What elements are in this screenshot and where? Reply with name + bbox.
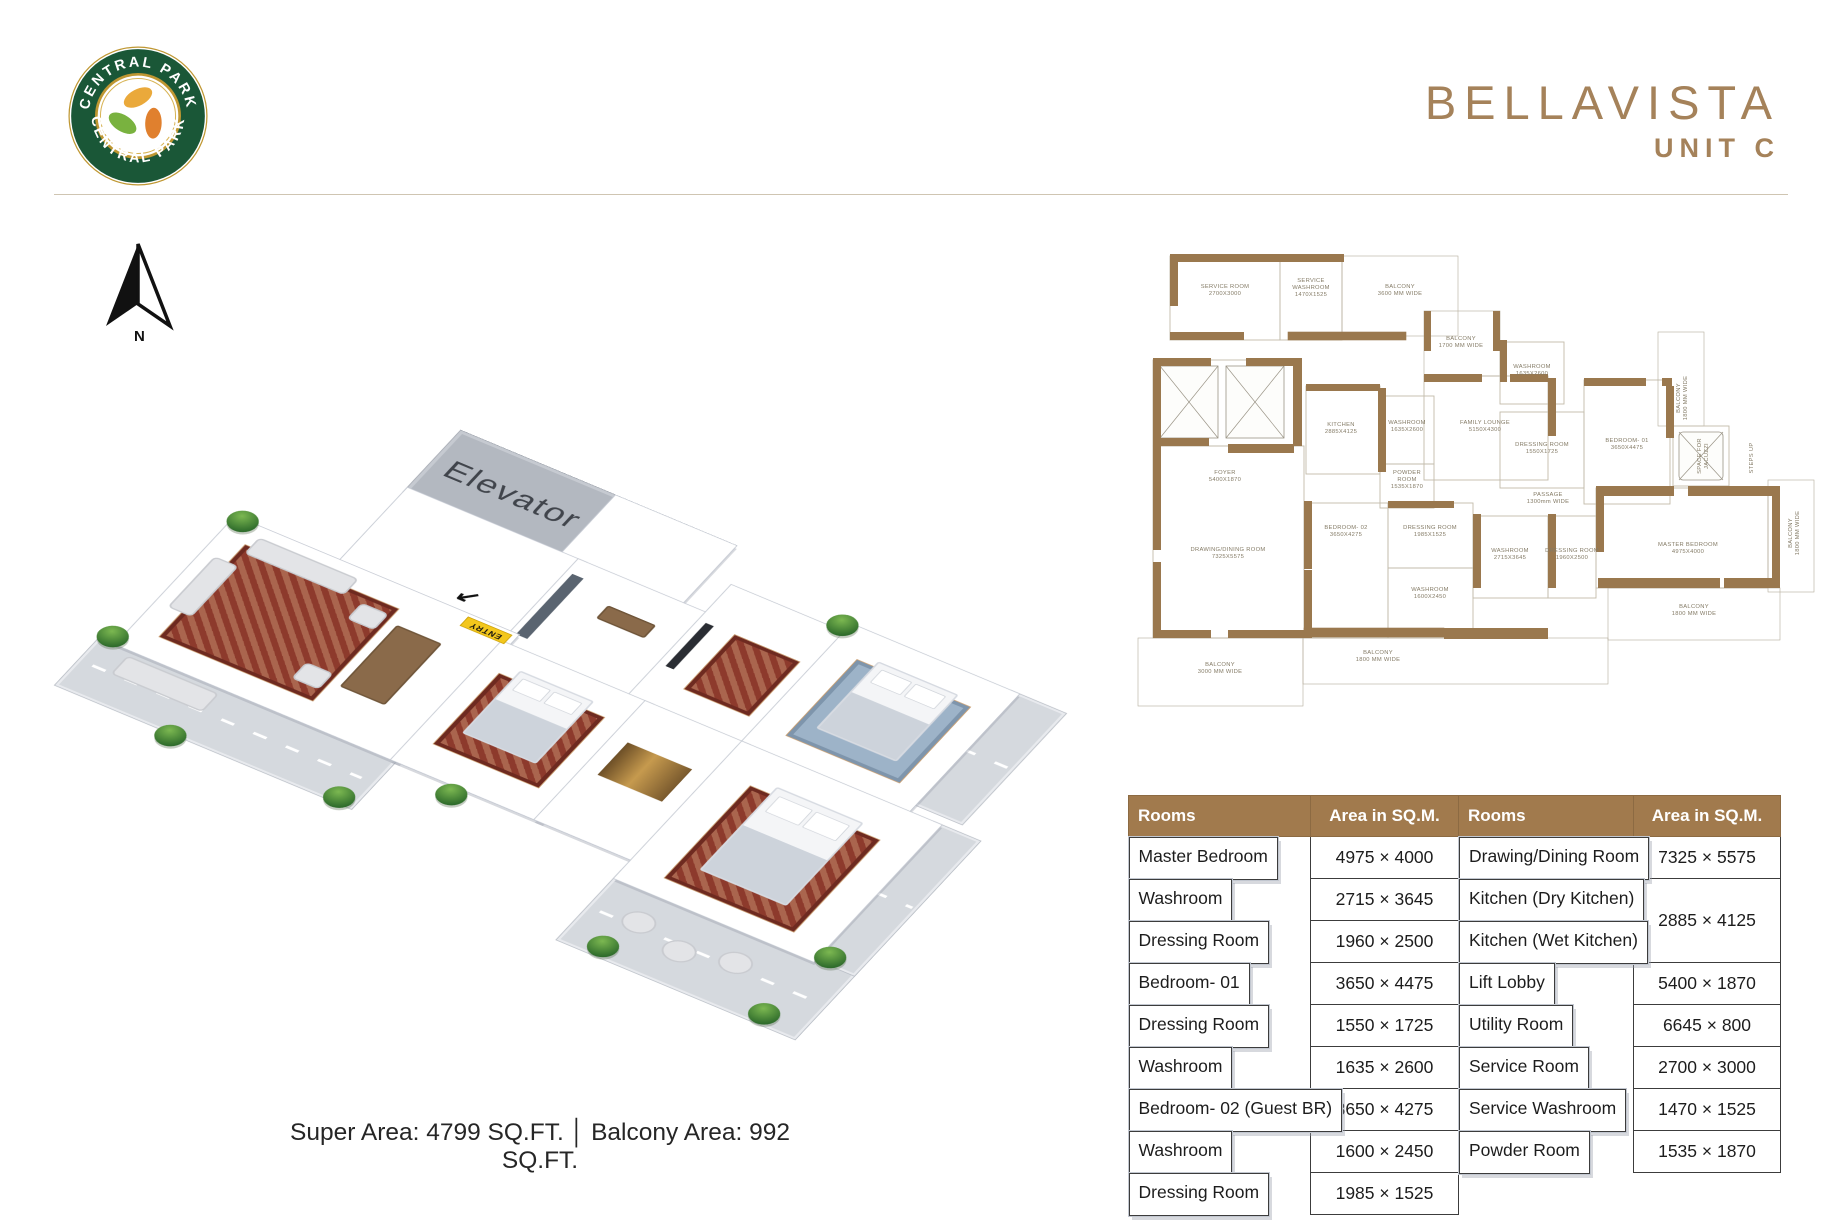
plan2d-room-label: BALCONY3600 MM WIDE [1378, 284, 1423, 297]
table-header-row: Rooms Area in SQ.M. Rooms Area in SQ.M. [1129, 796, 1781, 837]
plan2d-room-label: SERVICE ROOM2700X3000 [1201, 284, 1250, 297]
room-cell: Dressing Room [1129, 1005, 1270, 1048]
wardrobe-unit [598, 742, 693, 801]
area-cell: 2885 × 4125 [1634, 879, 1781, 963]
area-cell: 5400 × 1870 [1634, 963, 1781, 1005]
area-cell: 1960 × 2500 [1311, 921, 1459, 963]
area-cell: 1600 × 2450 [1311, 1131, 1459, 1173]
plan2d-room-label: BEDROOM- 023650X4275 [1324, 525, 1367, 538]
table-row: Bedroom- 013650 × 4475Lift Lobby5400 × 1… [1129, 963, 1781, 1005]
iso-plan-surface: Elevator [28, 380, 1105, 1034]
header-rooms-right: Rooms [1459, 796, 1634, 837]
plan2d-room-label: DRAWING/DINING ROOM7325X5575 [1190, 547, 1265, 560]
room-cell: Bedroom- 01 [1129, 963, 1250, 1006]
plan2d-room-label: POWDERROOM1535X1870 [1391, 470, 1423, 490]
room-cell: Lift Lobby [1459, 963, 1555, 1006]
area-cell: 6645 × 800 [1634, 1005, 1781, 1047]
area-cell: 7325 × 5575 [1634, 837, 1781, 879]
plan2d-room-label: BALCONY1800 MM WIDE [1676, 376, 1689, 421]
plan2d-room-label: SPACE FORJACUZZI [1697, 438, 1710, 474]
header-divider [54, 194, 1788, 195]
plan2d-room-label: WASHROOM1600X2450 [1411, 587, 1449, 600]
kitchen-island [596, 605, 656, 638]
room-cell: Dressing Room [1129, 1173, 1270, 1216]
plan2d-room-label: FAMILY LOUNGE5150X4300 [1460, 420, 1510, 433]
plan2d-room-label: KITCHEN2885X4125 [1325, 422, 1357, 435]
super-area-text: Super Area: 4799 SQ.FT. [290, 1119, 564, 1146]
room-cell: Service Washroom [1459, 1089, 1626, 1132]
plan2d-room-label: PASSAGE1300mm WIDE [1527, 492, 1570, 505]
plan2d-room-label: BALCONY1800 MM WIDE [1788, 511, 1801, 556]
table-row: Washroom2715 × 3645Kitchen (Dry Kitchen)… [1129, 879, 1781, 921]
room-cell: Bedroom- 02 (Guest BR) [1129, 1089, 1343, 1132]
room-cell: Utility Room [1459, 1005, 1573, 1048]
floorplan-2d: SERVICE ROOM2700X3000SERVICEWASHROOM1470… [1128, 248, 1818, 738]
plan2d-room-label: DRESSING ROOM1985X1525 [1403, 525, 1457, 538]
area-cell: 1635 × 2600 [1311, 1047, 1459, 1089]
room-cell: Service Room [1459, 1047, 1589, 1090]
plan2d-room-label: DRESSING ROOM1550X1725 [1515, 442, 1569, 455]
plan2d-room-label: WASHROOM2715X3645 [1491, 548, 1529, 561]
room-area-table: Rooms Area in SQ.M. Rooms Area in SQ.M. … [1128, 795, 1781, 1215]
plan2d-room-label: BALCONY1700 MM WIDE [1439, 336, 1484, 349]
page-title: BELLAVISTA [1425, 78, 1780, 127]
area-cell: 1985 × 1525 [1311, 1173, 1459, 1215]
table-row: Dressing Room1550 × 1725Utility Room6645… [1129, 1005, 1781, 1047]
area-cell: 2715 × 3645 [1311, 879, 1459, 921]
table-row: Washroom1600 × 2450Powder Room1535 × 187… [1129, 1131, 1781, 1173]
area-cell: 2700 × 3000 [1634, 1047, 1781, 1089]
area-cell: 1535 × 1870 [1634, 1131, 1781, 1173]
iso-floorplan-3d: Elevator [20, 340, 1110, 1110]
table-row: Bedroom- 02 (Guest BR)3650 × 4275Service… [1129, 1089, 1781, 1131]
room-cell: Washroom [1129, 1047, 1233, 1090]
header-rooms-left: Rooms [1129, 796, 1311, 837]
table-row: Master Bedroom4975 × 4000Drawing/Dining … [1129, 837, 1781, 879]
plan2d-room-label: BEDROOM- 013650X4475 [1605, 438, 1648, 451]
plan2d-room-label: MASTER BEDROOM4975X4000 [1658, 542, 1718, 555]
room-cell: Kitchen (Wet Kitchen) [1459, 921, 1648, 964]
plan2d-room-label: BALCONY1800 MM WIDE [1672, 604, 1717, 617]
plan2d-room-label: BALCONY3000 MM WIDE [1198, 662, 1243, 675]
central-park-logo: CENTRAL PARK CENTRAL PARK [66, 44, 210, 188]
header-area-left: Area in SQ.M. [1311, 796, 1459, 837]
area-cell: 1470 × 1525 [1634, 1089, 1781, 1131]
plan2d-room-label: WASHROOM1635X2600 [1513, 364, 1551, 377]
page-subtitle: UNIT C [1425, 133, 1780, 164]
plan2d-room-label: WASHROOM1635X2600 [1388, 420, 1426, 433]
plan2d-room-label: SERVICEWASHROOM1470X1525 [1292, 278, 1330, 298]
area-separator: │ [564, 1119, 591, 1146]
room-cell: Washroom [1129, 1131, 1233, 1174]
empty-cell [1459, 1173, 1781, 1215]
table-row: Dressing Room1985 × 1525 [1129, 1173, 1781, 1215]
area-cell: 1550 × 1725 [1311, 1005, 1459, 1047]
brochure-page: CENTRAL PARK CENTRAL PARK BELLAVISTA UNI… [0, 0, 1832, 1221]
area-summary: Super Area: 4799 SQ.FT.│Balcony Area: 99… [250, 1119, 830, 1175]
area-cell: 4975 × 4000 [1311, 837, 1459, 879]
room-cell: Drawing/Dining Room [1459, 837, 1649, 880]
plan2d-room-label: STEPS UP [1749, 442, 1755, 473]
title-block: BELLAVISTA UNIT C [1425, 78, 1780, 164]
room-cell: Dressing Room [1129, 921, 1270, 964]
room-cell: Master Bedroom [1129, 837, 1278, 880]
header-area-right: Area in SQ.M. [1634, 796, 1781, 837]
north-compass-icon: N [92, 240, 184, 344]
plan2d-room-label: BALCONY1800 MM WIDE [1356, 650, 1401, 663]
room-cell: Powder Room [1459, 1131, 1590, 1174]
plan2d-room-label: FOYER5400X1870 [1209, 470, 1241, 483]
table-row: Washroom1635 × 2600Service Room2700 × 30… [1129, 1047, 1781, 1089]
area-cell: 3650 × 4475 [1311, 963, 1459, 1005]
room-cell: Kitchen (Dry Kitchen) [1459, 879, 1644, 922]
room-cell: Washroom [1129, 879, 1233, 922]
